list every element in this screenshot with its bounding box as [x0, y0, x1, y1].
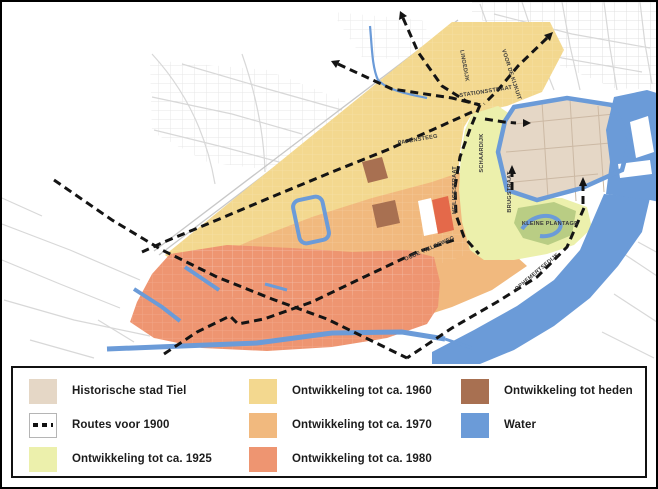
legend-label-1960: Ontwikkeling tot ca. 1960 [292, 385, 432, 397]
legend-swatch-water [461, 413, 489, 438]
legend-item-routes: Routes voor 1900 [29, 411, 169, 439]
legend-swatch-1980 [249, 447, 277, 472]
street-label: KLEINE PLANTAGE [522, 221, 578, 227]
legend-item-water: Water [461, 411, 536, 439]
legend-column-3: Ontwikkeling tot heden Water [461, 368, 646, 476]
legend-label-water: Water [504, 419, 536, 431]
legend-item-1925: Ontwikkeling tot ca. 1925 [29, 445, 212, 473]
legend-label-1980: Ontwikkeling tot ca. 1980 [292, 453, 432, 465]
street-label: SCHAARDIJK [479, 133, 485, 172]
legend-column-1: Historische stad Tiel Routes voor 1900 O… [29, 368, 229, 476]
map-canvas: LINGEDIJKSTATIONSSTRAATVOOR DE KIJKUITSC… [2, 2, 656, 364]
legend-swatch-historic [29, 379, 57, 404]
legend: Historische stad Tiel Routes voor 1900 O… [11, 366, 647, 478]
legend-item-1960: Ontwikkeling tot ca. 1960 [249, 377, 432, 405]
legend-item-1970: Ontwikkeling tot ca. 1970 [249, 411, 432, 439]
legend-swatch-1960 [249, 379, 277, 404]
zone-heden-patch-2 [372, 200, 400, 228]
map-area: LINGEDIJKSTATIONSSTRAATVOOR DE KIJKUITSC… [2, 2, 656, 364]
legend-swatch-1970 [249, 413, 277, 438]
legend-item-historic: Historische stad Tiel [29, 377, 186, 405]
legend-item-heden: Ontwikkeling tot heden [461, 377, 633, 405]
legend-column-2: Ontwikkeling tot ca. 1960 Ontwikkeling t… [249, 368, 459, 476]
legend-label-historic: Historische stad Tiel [72, 385, 186, 397]
legend-swatch-heden [461, 379, 489, 404]
legend-label-routes: Routes voor 1900 [72, 419, 169, 431]
legend-label-1970: Ontwikkeling tot ca. 1970 [292, 419, 432, 431]
street-label: HEILIGESTRAAT [452, 166, 458, 214]
legend-swatch-routes dash-line-icon [29, 413, 57, 438]
legend-label-1925: Ontwikkeling tot ca. 1925 [72, 453, 212, 465]
tiel-development-map-page: LINGEDIJKSTATIONSSTRAATVOOR DE KIJKUITSC… [0, 0, 658, 489]
street-label: BRUGSTRAAT [507, 171, 513, 213]
legend-swatch-1925 [29, 447, 57, 472]
legend-item-1980: Ontwikkeling tot ca. 1980 [249, 445, 432, 473]
legend-label-heden: Ontwikkeling tot heden [504, 385, 633, 397]
